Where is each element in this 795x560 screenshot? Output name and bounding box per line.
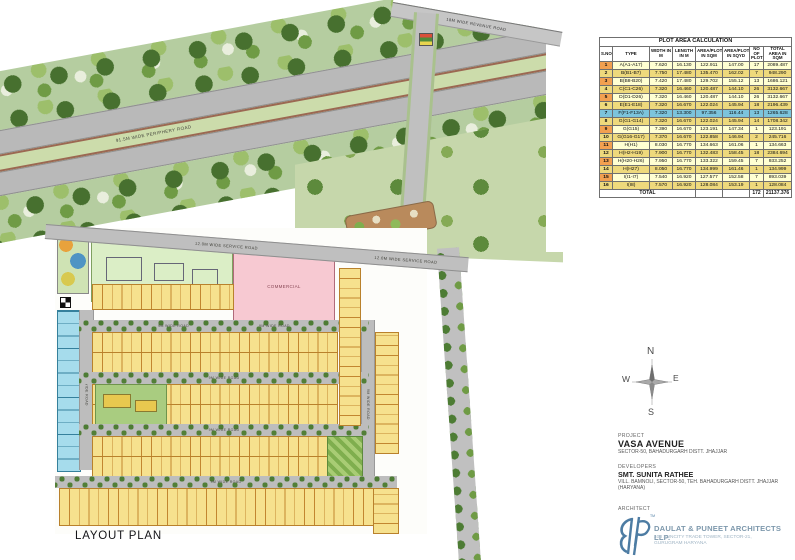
table-cell: 97.356	[696, 109, 723, 117]
table-cell: 1	[750, 181, 764, 189]
internal-road: 9M WIDE ROAD 9M WIDE ROAD	[79, 320, 369, 332]
table-total-plots: 172	[750, 189, 764, 197]
play-area	[57, 234, 89, 294]
table-cell: E(E1-E18)	[613, 101, 650, 109]
internal-road: 9M WIDE ROAD	[79, 424, 369, 436]
table-cell: 12	[600, 149, 613, 157]
table-cell: 161.06	[723, 141, 750, 149]
table-cell: 7	[750, 157, 764, 165]
table-cell: 13	[750, 109, 764, 117]
table-cell: 153.19	[723, 181, 750, 189]
table-total-row: TOTAL 172 21137.376	[600, 189, 792, 197]
table-cell: B(B1-B7)	[613, 69, 650, 77]
plot-column	[375, 332, 399, 454]
table-cell: 152.58	[723, 173, 750, 181]
table-cell: 134.663	[764, 141, 792, 149]
table-cell: 7.320	[650, 117, 673, 125]
table-total-area: 21137.376	[764, 189, 792, 197]
table-cell: 948.290	[764, 69, 792, 77]
table-cell: 16.670	[673, 117, 696, 125]
table-cell: 146.94	[723, 133, 750, 141]
project-name: VASA AVENUE	[618, 439, 727, 449]
table-cell: 16	[600, 181, 613, 189]
table-header-cell: TYPE	[613, 47, 650, 62]
table-cell: 120.487	[696, 93, 723, 101]
table-cell: 15	[600, 173, 613, 181]
table-cell: 122.858	[696, 133, 723, 141]
table-cell: 7.320	[650, 109, 673, 117]
sheet-title: LAYOUT PLAN	[75, 530, 162, 542]
table-cell: I(I1-I7)	[613, 173, 650, 181]
layout-plan-sheet: 91.5M WIDE PERIPHERY ROAD 18M WIDE REVEN…	[0, 0, 795, 560]
table-row: 8G(G1-G14)7.32016.670122.024145.94141708…	[600, 117, 792, 125]
substation-marker	[60, 297, 71, 308]
table-total-empty	[696, 189, 723, 197]
table-cell: 16.670	[673, 101, 696, 109]
table-cell: 4	[600, 85, 613, 93]
internal-road-label: 9M WIDE ROAD	[211, 480, 242, 484]
table-cell: 7	[600, 109, 613, 117]
community-building	[106, 257, 142, 281]
table-cell: 134.999	[764, 165, 792, 173]
table-cell: 13	[750, 77, 764, 85]
table-cell: 16.770	[673, 149, 696, 157]
internal-road-vertical: 9M WIDE ROAD	[361, 320, 375, 488]
table-row: 10G(G16-G17)7.37016.670122.858146.942245…	[600, 133, 792, 141]
table-cell: 7.950	[650, 157, 673, 165]
table-cell: 14	[750, 117, 764, 125]
table-cell: 3132.667	[764, 85, 792, 93]
plot-row	[92, 456, 338, 478]
table-cell: 122.911	[696, 61, 723, 69]
compass-north-label: N	[647, 346, 654, 357]
architect-logo	[616, 514, 652, 556]
table-cell: 129.702	[696, 77, 723, 85]
table-cell: 7.320	[650, 85, 673, 93]
table-cell: 7.570	[650, 181, 673, 189]
table-row: 1A(A1-A17)7.62016.130122.911147.00172089…	[600, 61, 792, 69]
table-cell: 7	[750, 69, 764, 77]
table-cell: 147.34	[723, 125, 750, 133]
developer-name: SMT. SUNITA RATHEE	[618, 470, 790, 479]
table-cell: 16.920	[673, 173, 696, 181]
table-cell: 155.12	[723, 77, 750, 85]
table-cell: 122.024	[696, 101, 723, 109]
table-row: 15I(I1-I7)7.54016.920127.577152.587893.0…	[600, 173, 792, 181]
service-road-label: 12.0M WIDE SERVICE ROAD	[195, 241, 258, 251]
table-cell: 933.252	[764, 157, 792, 165]
table-cell: 16.770	[673, 157, 696, 165]
table-cell: 5	[600, 93, 613, 101]
table-cell: C(C1-C26)	[613, 85, 650, 93]
compass-east-label: E	[673, 373, 679, 383]
community-building	[154, 263, 184, 281]
table-cell: 7.420	[650, 77, 673, 85]
table-cell: 16.460	[673, 93, 696, 101]
table-row: 2B(B1-B7)7.75017.480135.470162.027948.29…	[600, 69, 792, 77]
plot-table-head: PLOT AREA CALCULATION S.NOTYPEWIDTH IN M…	[600, 38, 792, 62]
table-cell: 17.480	[673, 69, 696, 77]
table-cell: 145.94	[723, 117, 750, 125]
table-cell: 7.390	[650, 125, 673, 133]
table-cell: B(B8-B20)	[613, 77, 650, 85]
table-cell: D(D1-D26)	[613, 93, 650, 101]
table-cell: F(F1-F13A)	[613, 109, 650, 117]
table-row: 7F(F1-F13A)7.32013.30097.356116.44131265…	[600, 109, 792, 117]
compass-rose: N W E S	[622, 346, 682, 420]
table-cell: 14	[600, 165, 613, 173]
internal-road-label: 9M WIDE ROAD	[209, 428, 240, 432]
table-cell: 144.10	[723, 93, 750, 101]
table-cell: 7.750	[650, 69, 673, 77]
table-cell: 8.050	[650, 165, 673, 173]
architect-address-line2: GURUGRAM HARYANA	[654, 541, 707, 546]
table-cell: 158.45	[723, 149, 750, 157]
table-cell: 1	[750, 125, 764, 133]
table-cell: 9	[600, 125, 613, 133]
table-row: 5D(D1-D26)7.32016.460120.487144.10263132…	[600, 93, 792, 101]
table-cell: H(H2-H19)	[613, 149, 650, 157]
logo-trademark: TM	[650, 514, 655, 518]
park-building	[135, 400, 157, 412]
table-row: 9G(G15)7.39016.670123.191147.341123.191	[600, 125, 792, 133]
table-total-empty	[723, 189, 750, 197]
table-cell: 7.320	[650, 101, 673, 109]
table-cell: 6	[600, 101, 613, 109]
table-cell: H(H27)	[613, 165, 650, 173]
table-cell: 3132.667	[764, 93, 792, 101]
plot-column-f-series	[57, 310, 81, 472]
table-header-cell: TOTAL AREA IN SQM	[764, 47, 792, 62]
internal-road-label: 9M WIDE ROAD	[158, 324, 189, 328]
table-title: PLOT AREA CALCULATION	[600, 38, 792, 47]
internal-road: 9M WIDE ROAD	[79, 372, 369, 384]
table-cell: 1265.628	[764, 109, 792, 117]
east-boundary-road	[437, 247, 482, 560]
green-patch	[327, 436, 363, 478]
table-cell: A(A1-A17)	[613, 61, 650, 69]
table-cell: 159.45	[723, 157, 750, 165]
table-cell: 135.470	[696, 69, 723, 77]
table-cell: G(G16-G17)	[613, 133, 650, 141]
table-cell: 134.999	[696, 165, 723, 173]
table-cell: 16.670	[673, 125, 696, 133]
table-header-cell: NO OF PLOTS	[750, 47, 764, 62]
plot-row	[92, 332, 338, 354]
table-cell: 122.024	[696, 117, 723, 125]
table-cell: 3	[600, 77, 613, 85]
table-row: 6E(E1-E18)7.32016.670122.024145.94182196…	[600, 101, 792, 109]
entry-gate	[419, 33, 433, 46]
table-cell: 2196.439	[764, 101, 792, 109]
internal-road: 9M WIDE ROAD	[55, 476, 397, 488]
table-cell: 133.322	[696, 157, 723, 165]
table-cell: 134.663	[696, 141, 723, 149]
internal-road-label: 9M WIDE ROAD	[259, 324, 290, 328]
table-cell: 17	[750, 61, 764, 69]
table-cell: G(G15)	[613, 125, 650, 133]
table-row: 11H(H1)8.03016.770134.663161.061134.663	[600, 141, 792, 149]
plot-table-header-row: S.NOTYPEWIDTH IN MLENGTH IN MAREA/PLOT I…	[600, 47, 792, 62]
table-cell: 16.920	[673, 181, 696, 189]
table-cell: 7.900	[650, 149, 673, 157]
table-header-cell: S.NO	[600, 47, 613, 62]
plot-column-a-series	[339, 268, 361, 426]
table-total-label: TOTAL	[600, 189, 696, 197]
table-row: 16I(I8)7.57016.920128.084153.191128.084	[600, 181, 792, 189]
table-cell: H(H1)	[613, 141, 650, 149]
table-cell: 1	[600, 61, 613, 69]
table-cell: 26	[750, 93, 764, 101]
table-cell: 123.191	[696, 125, 723, 133]
table-cell: 893.039	[764, 173, 792, 181]
table-cell: 2	[600, 69, 613, 77]
table-cell: 1686.121	[764, 77, 792, 85]
table-cell: 145.94	[723, 101, 750, 109]
table-cell: 10	[600, 133, 613, 141]
table-cell: 123.191	[764, 125, 792, 133]
internal-road-label: 9M WIDE ROAD	[366, 389, 370, 420]
plot-table-body: 1A(A1-A17)7.62016.130122.911147.00172089…	[600, 61, 792, 189]
developer-address-line2: (HARYANA)	[618, 485, 790, 491]
table-cell: 17.480	[673, 77, 696, 85]
table-header-cell: LENGTH IN M	[673, 47, 696, 62]
table-cell: 144.10	[723, 85, 750, 93]
plot-area-table: PLOT AREA CALCULATION S.NOTYPEWIDTH IN M…	[599, 37, 792, 198]
plot-row-h-series	[59, 488, 395, 526]
table-cell: 7	[750, 173, 764, 181]
table-cell: 7.370	[650, 133, 673, 141]
architect-address-line1: 408 SUNCITY TRADE TOWER, SECTOR-21,	[654, 535, 752, 540]
table-cell: 162.02	[723, 69, 750, 77]
service-road-label: 12.0M WIDE SERVICE ROAD	[374, 255, 437, 265]
architect-label: ARCHITECT	[618, 506, 650, 512]
table-cell: 18	[750, 101, 764, 109]
table-cell: 7.620	[650, 61, 673, 69]
compass-south-label: S	[648, 407, 654, 417]
table-header-cell: AREA/PLOT IN SQM	[696, 47, 723, 62]
table-cell: 2089.487	[764, 61, 792, 69]
plot-row	[92, 436, 338, 458]
table-cell: 147.00	[723, 61, 750, 69]
plot-column-i-series	[373, 488, 399, 534]
compass-star-icon	[632, 359, 672, 405]
table-cell: 245.716	[764, 133, 792, 141]
plot-row	[92, 352, 338, 374]
table-cell: 7.540	[650, 173, 673, 181]
table-cell: 127.577	[696, 173, 723, 181]
table-cell: 11	[600, 141, 613, 149]
table-row: 14H(H27)8.05016.770134.999161.461134.999	[600, 165, 792, 173]
table-cell: 8.030	[650, 141, 673, 149]
architect-block: ARCHITECT	[618, 506, 650, 512]
table-cell: H(H20-H26)	[613, 157, 650, 165]
table-title-row: PLOT AREA CALCULATION	[600, 38, 792, 47]
developers-block: DEVELOPERS SMT. SUNITA RATHEE VILL. BAMN…	[618, 464, 790, 491]
table-cell: 16.770	[673, 141, 696, 149]
table-cell: 132.483	[696, 149, 723, 157]
table-cell: 16.460	[673, 85, 696, 93]
table-cell: 120.487	[696, 85, 723, 93]
table-cell: I(I8)	[613, 181, 650, 189]
table-cell: 16.670	[673, 133, 696, 141]
table-row: 13H(H20-H26)7.95016.770133.322159.457933…	[600, 157, 792, 165]
table-cell: 161.46	[723, 165, 750, 173]
estate-layout: COMMUNITY SPACE COMMERCIAL 9M WIDE ROAD …	[55, 228, 427, 534]
table-cell: G(G1-G14)	[613, 117, 650, 125]
table-header-cell: AREA/PLOT IN SQYD	[723, 47, 750, 62]
table-cell: 18	[750, 149, 764, 157]
internal-road-label: 9M WIDE ROAD	[209, 376, 240, 380]
compass-west-label: W	[622, 374, 630, 384]
table-header-cell: WIDTH IN M	[650, 47, 673, 62]
table-row: 3B(B8-B20)7.42017.480129.702155.12131686…	[600, 77, 792, 85]
table-cell: 1	[750, 141, 764, 149]
project-address: SECTOR-50, BAHADURGARH DISTT. JHAJJAR	[618, 449, 727, 455]
table-cell: 13.300	[673, 109, 696, 117]
park-building	[103, 394, 131, 408]
table-cell: 26	[750, 85, 764, 93]
table-cell: 7.320	[650, 93, 673, 101]
table-cell: 13	[600, 157, 613, 165]
table-cell: 128.084	[696, 181, 723, 189]
plot-row-b-series	[92, 284, 234, 310]
table-cell: 16.130	[673, 61, 696, 69]
table-cell: 1708.342	[764, 117, 792, 125]
table-cell: 2384.694	[764, 149, 792, 157]
table-cell: 128.084	[764, 181, 792, 189]
table-row: 12H(H2-H19)7.90016.770132.483158.4518238…	[600, 149, 792, 157]
table-cell: 16.770	[673, 165, 696, 173]
commercial-label: COMMERCIAL	[267, 284, 301, 289]
table-cell: 116.44	[723, 109, 750, 117]
table-cell: 2	[750, 133, 764, 141]
table-cell: 8	[600, 117, 613, 125]
project-block: PROJECT VASA AVENUE SECTOR-50, BAHADURGA…	[618, 433, 727, 455]
table-row: 4C(C1-C26)7.32016.460120.487144.10263132…	[600, 85, 792, 93]
table-cell: 1	[750, 165, 764, 173]
